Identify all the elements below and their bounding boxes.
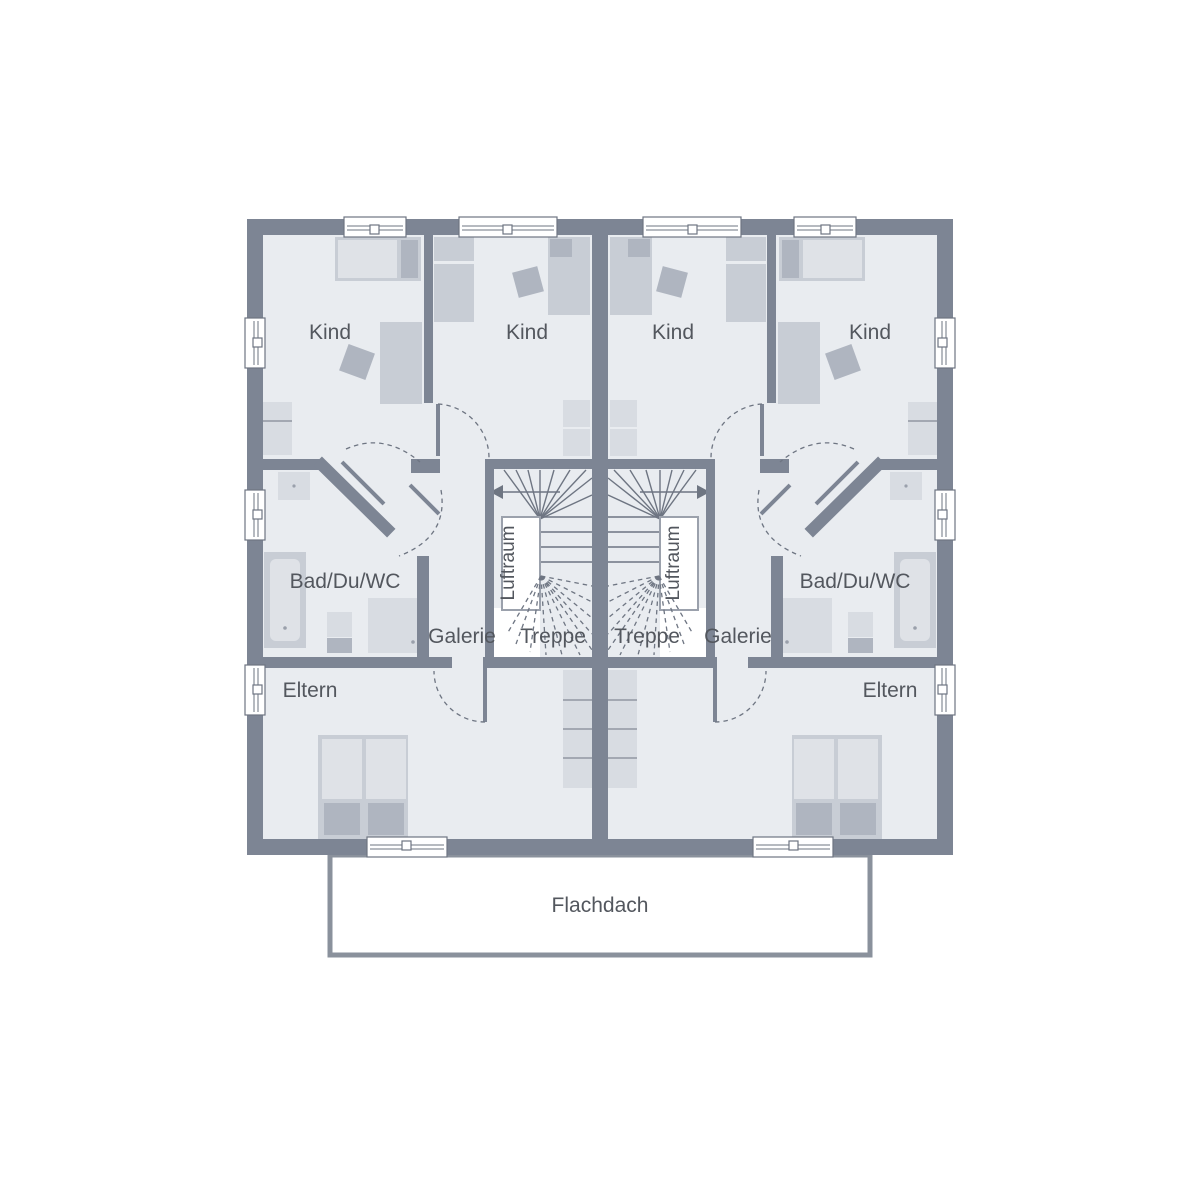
room-label-airspace-left: Luftraum (498, 526, 519, 601)
unit-right (600, 217, 955, 857)
floor-plan-drawing: Kind Kind Kind Kind Bad/Du/WC Bad/Du/WC … (0, 0, 1200, 1200)
label-flat-roof: Flachdach (552, 894, 649, 917)
room-label-kind-3: Kind (652, 321, 694, 344)
floor-plan-page: Kind Kind Kind Kind Bad/Du/WC Bad/Du/WC … (0, 0, 1200, 1200)
room-label-kind-1: Kind (309, 321, 351, 344)
unit-left (245, 217, 600, 857)
room-label-bath-left: Bad/Du/WC (290, 570, 401, 593)
room-label-kind-4: Kind (849, 321, 891, 344)
room-label-bath-right: Bad/Du/WC (800, 570, 911, 593)
room-label-stairs-right: Treppe (614, 625, 680, 648)
room-label-parents-right: Eltern (863, 679, 918, 702)
room-label-airspace-right: Luftraum (663, 526, 684, 601)
room-label-stairs-left: Treppe (520, 625, 586, 648)
room-label-kind-2: Kind (506, 321, 548, 344)
room-label-gallery-left: Galerie (428, 625, 496, 648)
room-label-parents-left: Eltern (283, 679, 338, 702)
room-label-gallery-right: Galerie (704, 625, 772, 648)
